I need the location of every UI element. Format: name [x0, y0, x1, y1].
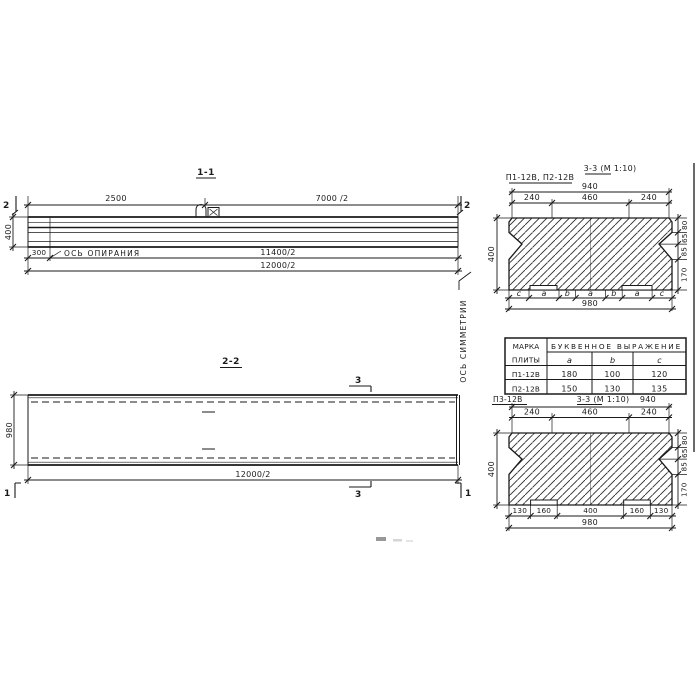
dim-240-right: 240: [641, 193, 657, 202]
lifting-loop: [196, 205, 206, 218]
row-mark: П1-12В: [512, 370, 540, 379]
plate-marks-label: П1-12В, П2-12В: [506, 173, 575, 182]
svg-text:400: 400: [583, 506, 598, 515]
svg-text:c: c: [517, 289, 522, 298]
cut-marker-1-right: 1: [455, 483, 471, 499]
dim-11400-2-label: 11400/2: [260, 248, 295, 257]
dim-right-65: 65: [680, 448, 689, 458]
row-mark: П2-12В: [512, 385, 540, 394]
support-axis-leader: [50, 251, 61, 258]
svg-text:1: 1: [465, 489, 471, 499]
cut-marker-2-right: 2: [457, 196, 470, 215]
dim-right-85: 85: [679, 462, 688, 472]
row-b: 130: [604, 385, 620, 394]
view-section-2-2: 2-2 980 12000/2 3 3 1: [4, 357, 471, 500]
table-header-mark-2: ПЛИТЫ: [512, 356, 540, 365]
section-3-3-p1-p2: П1-12В, П2-12В 3-3 (М 1:10) 940 240 460 …: [487, 164, 689, 312]
dim-240-left: 240: [524, 408, 540, 417]
engineering-drawing: 1-1 2500 7000 /2 400 3: [0, 0, 700, 700]
table-col-b: b: [610, 356, 615, 365]
table-row: П2-12В 150 130 135: [512, 385, 668, 394]
svg-text:b: b: [565, 289, 570, 298]
row-a: 180: [561, 370, 577, 379]
dimension-ticks: [10, 202, 461, 274]
slab-plan-outline: [28, 395, 460, 465]
row-c: 120: [651, 370, 667, 379]
dim-940-label: 940: [640, 395, 656, 404]
section-title: 3-3 (М 1:10): [577, 395, 630, 404]
bottom-dimension-row: 130 160 400 160 130: [513, 506, 669, 515]
cut-marker-2-left: 2: [3, 196, 18, 215]
table-header-expression: БУКВЕННОЕ ВЫРАЖЕНИЕ: [551, 342, 682, 351]
dim-7000-2-label: 7000 /2: [316, 194, 349, 203]
dim-460: 460: [582, 193, 598, 202]
dim-400-label: 400: [487, 461, 496, 477]
dim-12000-2-label: 12000/2: [235, 470, 270, 479]
dim-240-left: 240: [524, 193, 540, 202]
dimension-lines: [13, 205, 462, 271]
scan-artifact: [376, 537, 413, 542]
symmetry-axis-flag: [459, 272, 471, 290]
section-title: 3-3 (М 1:10): [584, 164, 637, 173]
dim-right-80: 80: [680, 220, 689, 230]
table-row: П1-12В 180 100 120: [512, 370, 668, 379]
dim-right-85: 85: [679, 247, 688, 257]
cut-marker-3-top: 3: [349, 376, 371, 392]
dim-right-80: 80: [680, 435, 689, 445]
table-col-c: c: [657, 356, 662, 365]
svg-text:2: 2: [3, 201, 9, 211]
svg-text:3: 3: [355, 490, 361, 500]
svg-text:130: 130: [654, 506, 669, 515]
svg-text:2: 2: [464, 201, 470, 211]
svg-text:160: 160: [537, 506, 552, 515]
section-3-3-p3: П3-12В 3-3 (М 1:10) 940 240 460 240 400 …: [487, 395, 689, 531]
row-b: 100: [604, 370, 620, 379]
dim-980-label: 980: [582, 518, 598, 527]
svg-text:a: a: [542, 289, 547, 298]
extension-lines: [10, 395, 458, 484]
row-a: 150: [561, 385, 577, 394]
svg-text:1: 1: [4, 489, 10, 499]
svg-text:a: a: [588, 289, 593, 298]
cut-marker-3-bottom: 3: [349, 481, 371, 500]
view-section-1-1: 1-1 2500 7000 /2 400 3: [3, 168, 470, 275]
drawing-sheet: 1-1 2500 7000 /2 400 3: [0, 0, 700, 700]
dim-2500-label: 2500: [105, 194, 127, 203]
dim-980-label: 980: [5, 422, 14, 438]
beam-outline: [28, 217, 458, 247]
svg-text:160: 160: [630, 506, 645, 515]
dim-400-label: 400: [487, 246, 496, 262]
svg-text:3: 3: [355, 376, 361, 386]
detail-mark-box: [208, 208, 219, 218]
dim-300-label: 300: [32, 248, 47, 257]
dim-940-label: 940: [582, 182, 598, 191]
dim-400-label: 400: [4, 224, 13, 240]
extension-lines: [9, 196, 458, 275]
plate-mark-label: П3-12В: [493, 395, 523, 404]
row-c: 135: [651, 385, 667, 394]
parameters-table: МАРКА ПЛИТЫ БУКВЕННОЕ ВЫРАЖЕНИЕ a b c П1…: [505, 338, 686, 394]
dim-240-right: 240: [641, 408, 657, 417]
cut-marker-1-left: 1: [4, 483, 21, 499]
support-axis-label: ОСЬ ОПИРАНИЯ: [64, 249, 140, 258]
dim-460: 460: [582, 408, 598, 417]
dim-right-65: 65: [680, 233, 689, 243]
svg-text:130: 130: [513, 506, 528, 515]
svg-text:b: b: [611, 289, 616, 298]
dim-980-label: 980: [582, 299, 598, 308]
dim-12000-2-label: 12000/2: [260, 261, 295, 270]
table-header-mark-1: МАРКА: [513, 342, 540, 351]
dimension-lines: [14, 391, 462, 480]
table-col-a: a: [567, 356, 572, 365]
view-1-1-title: 1-1: [197, 168, 215, 178]
hidden-edge-dashed-lines: [31, 402, 455, 458]
center-break-dashes: [202, 412, 215, 449]
view-2-2-title: 2-2: [222, 357, 240, 367]
dim-right-170: 170: [679, 482, 688, 497]
svg-text:c: c: [660, 289, 665, 298]
symmetry-axis-text: ОСЬ СИММЕТРИИ: [459, 299, 468, 382]
symmetry-axis-label: ОСЬ СИММЕТРИИ: [459, 272, 471, 383]
dim-right-170: 170: [679, 267, 688, 282]
svg-text:a: a: [635, 289, 640, 298]
